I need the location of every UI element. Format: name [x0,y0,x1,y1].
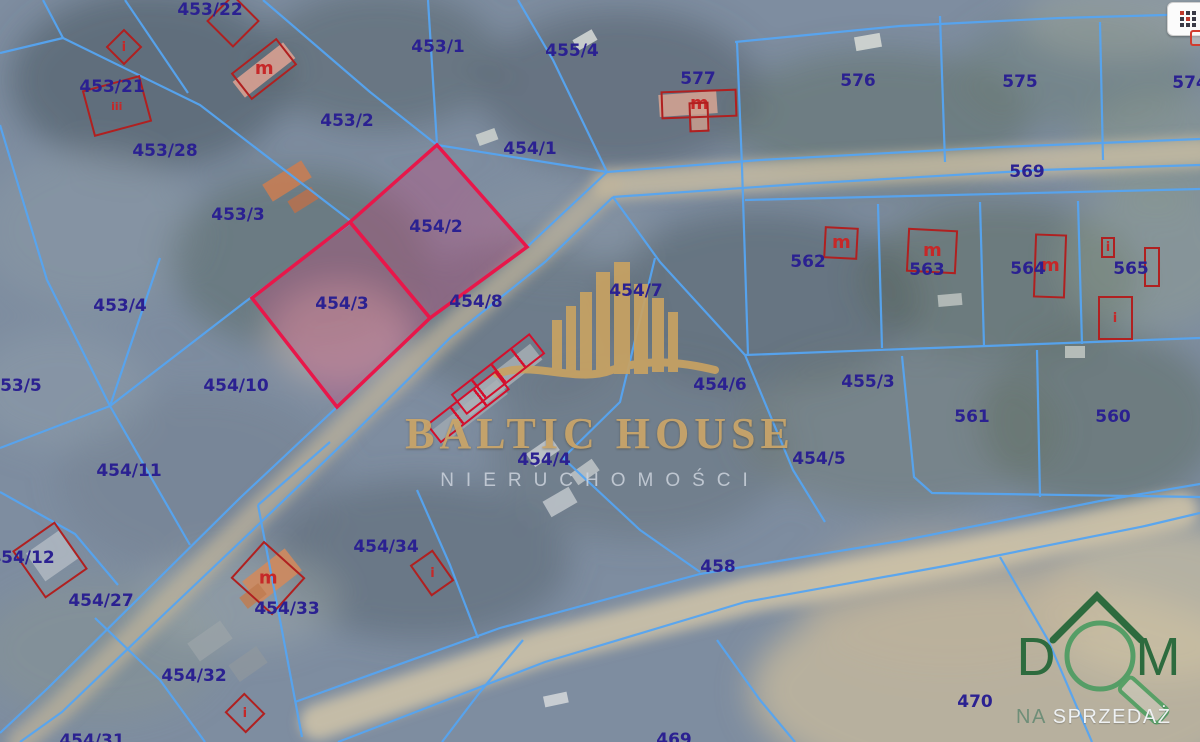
parcel-label-453-22: 453/22 [177,0,242,20]
parcel-label-562: 562 [790,252,826,272]
parcel-label-454-6: 454/6 [693,375,747,395]
parcel-label-454-11: 454/11 [96,461,161,481]
dom-logo-letter-m: M [1136,626,1181,688]
parcel-label-575: 575 [1002,72,1038,92]
parcel-label-454-7: 454/7 [609,281,663,301]
parcel-label-560: 560 [1095,407,1131,427]
parcel-label-454-1: 454/1 [503,139,557,159]
parcel-label-453-28: 453/28 [132,141,197,161]
parcel-label-454-4: 454/4 [517,450,571,470]
parcel-label-454-10: 454/10 [203,376,268,396]
building-outline-i: i [1098,296,1133,340]
dom-logo-letter-d: D [1017,626,1056,688]
parcel-label-569: 569 [1009,162,1045,182]
parcel-label-455-4: 455/4 [545,41,599,61]
cadastral-map[interactable]: 453/22453/21453/2453/28453/1455/45775765… [0,0,1200,742]
parcel-label-453-1: 453/1 [411,37,465,57]
parcel-label-564: 564 [1010,259,1046,279]
building-use-letter: m [255,60,274,78]
parcel-label-454-8: 454/8 [449,292,503,312]
map-control-partial[interactable] [1190,30,1200,46]
parcel-label-454-2: 454/2 [409,217,463,237]
building-use-letter: m [923,242,942,260]
parcel-label-453-4: 453/4 [93,296,147,316]
parcel-label-453-2: 453/2 [320,111,374,131]
grid-squares-icon [1180,11,1196,27]
building-use-letter: i [430,567,434,580]
parcel-label-563: 563 [909,260,945,280]
parcel-label-469: 469 [656,730,692,742]
parcel-label-454-31: 454/31 [59,731,124,742]
building-outline-m: m [823,226,859,260]
building-use-letter: iii [111,101,122,112]
parcel-label-453-21: 453/21 [79,77,144,97]
parcel-label-454-5: 454/5 [792,449,846,469]
building-use-letter: i [1106,241,1110,254]
parcel-label-454-33: 454/33 [254,599,319,619]
parcel-label-455-3: 455/3 [841,372,895,392]
tagline-word: SPRZEDAŻ [1053,706,1172,728]
parcel-label-453-3: 453/3 [211,205,265,225]
parcel-label-561: 561 [954,407,990,427]
parcel-label-576: 576 [840,71,876,91]
parcel-label-454-27: 454/27 [68,591,133,611]
parcel-label-574: 574 [1172,73,1200,93]
building-outline-i: i [1101,237,1115,258]
parcel-label-458: 458 [700,557,736,577]
parcel-label-454-32: 454/32 [161,666,226,686]
building-use-letter: i [1113,312,1117,325]
parcel-label-577: 577 [680,69,716,89]
building-outline [688,102,709,133]
building-use-letter: i [122,41,126,54]
parcel-label-454-3: 454/3 [315,294,369,314]
parcel-label-470: 470 [957,692,993,712]
building-use-letter: m [259,569,278,587]
parcel-label-453-5: 453/5 [0,376,42,396]
tagline-prefix: NA [1016,706,1053,728]
parcel-label-454-12: 454/12 [0,548,55,568]
building-use-letter: i [243,707,247,720]
parcel-label-454-34: 454/34 [353,537,418,557]
dom-logo-tagline: NA SPRZEDAŻ [1016,706,1171,729]
building-use-letter: m [832,234,851,252]
parcel-label-565: 565 [1113,259,1149,279]
